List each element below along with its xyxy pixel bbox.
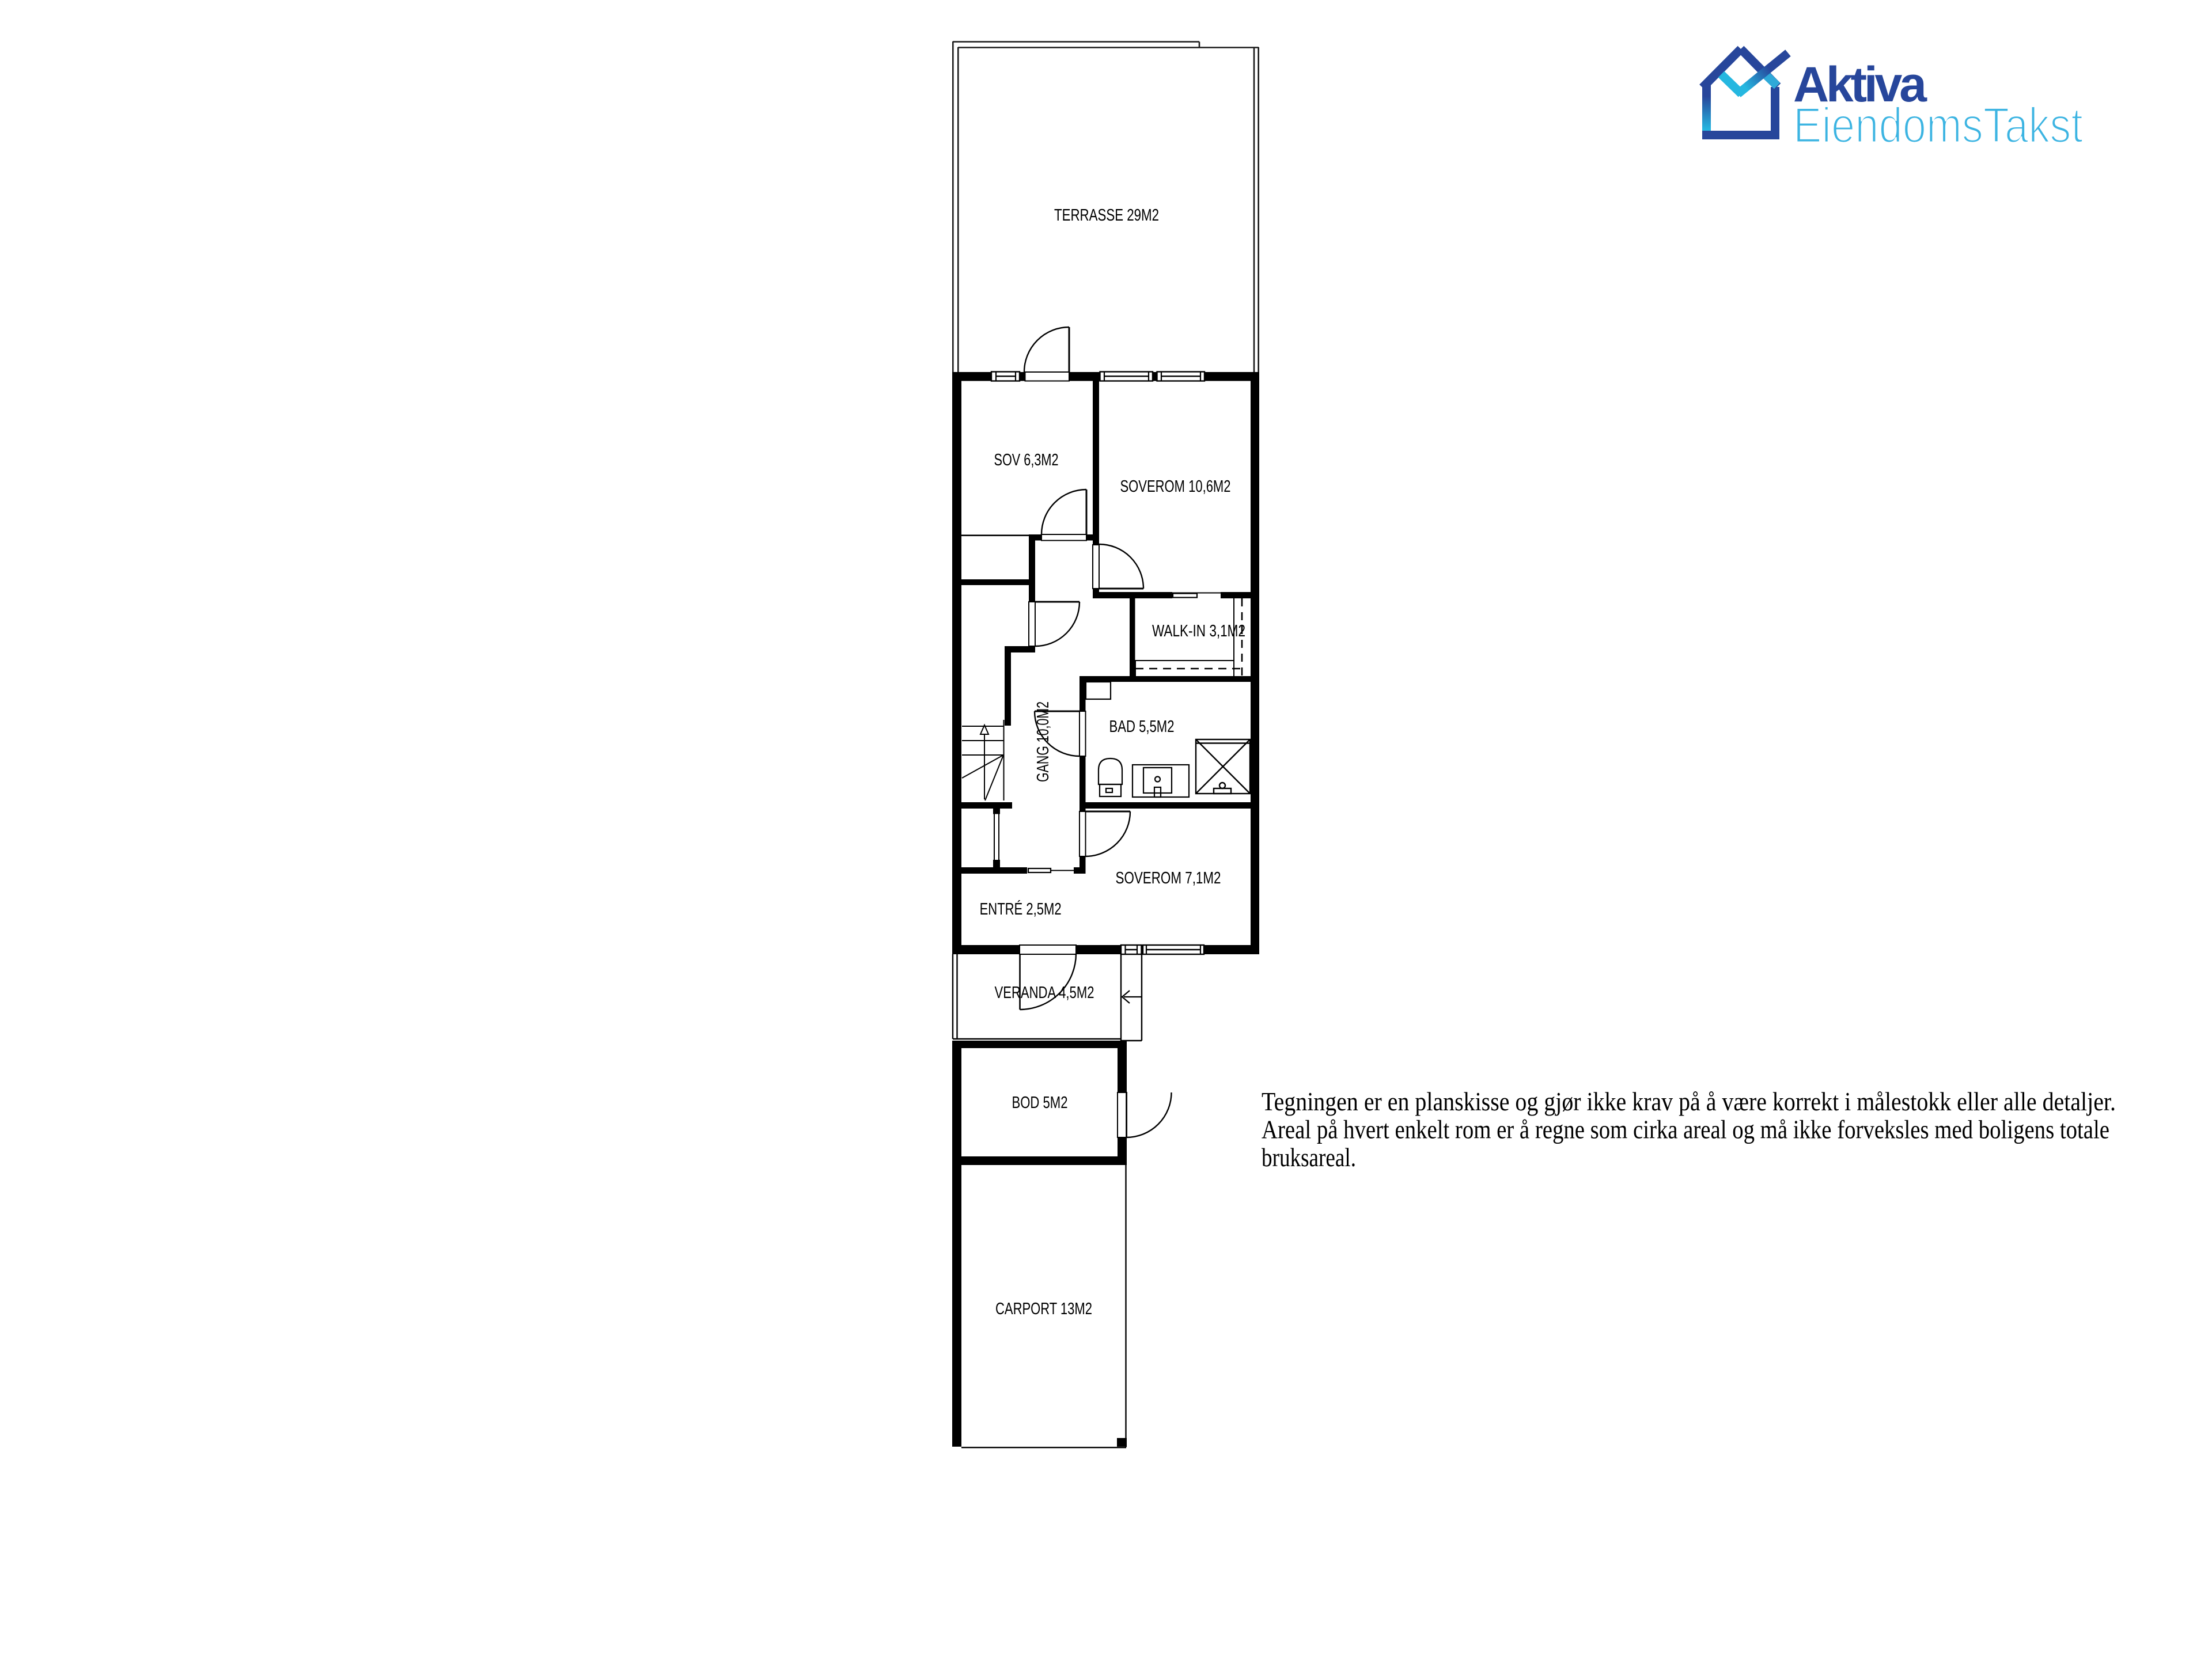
- svg-text:SOVEROM 7,1M2: SOVEROM 7,1M2: [1116, 869, 1221, 887]
- svg-text:bruksareal.: bruksareal.: [1262, 1143, 1356, 1172]
- svg-text:VERANDA 4,5M2: VERANDA 4,5M2: [995, 984, 1094, 1002]
- svg-text:GANG 10,0M2: GANG 10,0M2: [1034, 701, 1052, 782]
- svg-text:SOV 6,3M2: SOV 6,3M2: [994, 451, 1059, 469]
- svg-text:CARPORT 13M2: CARPORT 13M2: [995, 1300, 1092, 1318]
- svg-text:Areal på hvert enkelt rom er å: Areal på hvert enkelt rom er å regne som…: [1262, 1115, 2109, 1144]
- svg-text:BAD 5,5M2: BAD 5,5M2: [1109, 718, 1175, 736]
- svg-text:Tegningen er en planskisse og: Tegningen er en planskisse og gjør ikke …: [1262, 1087, 2116, 1116]
- svg-text:ENTRÉ 2,5M2: ENTRÉ 2,5M2: [980, 900, 1062, 919]
- svg-text:TERRASSE 29M2: TERRASSE 29M2: [1054, 206, 1159, 225]
- svg-text:EiendomsTakst: EiendomsTakst: [1793, 98, 2083, 153]
- svg-text:WALK-IN 3,1M2: WALK-IN 3,1M2: [1152, 622, 1245, 640]
- svg-text:BOD 5M2: BOD 5M2: [1012, 1094, 1068, 1112]
- svg-text:SOVEROM 10,6M2: SOVEROM 10,6M2: [1120, 477, 1231, 496]
